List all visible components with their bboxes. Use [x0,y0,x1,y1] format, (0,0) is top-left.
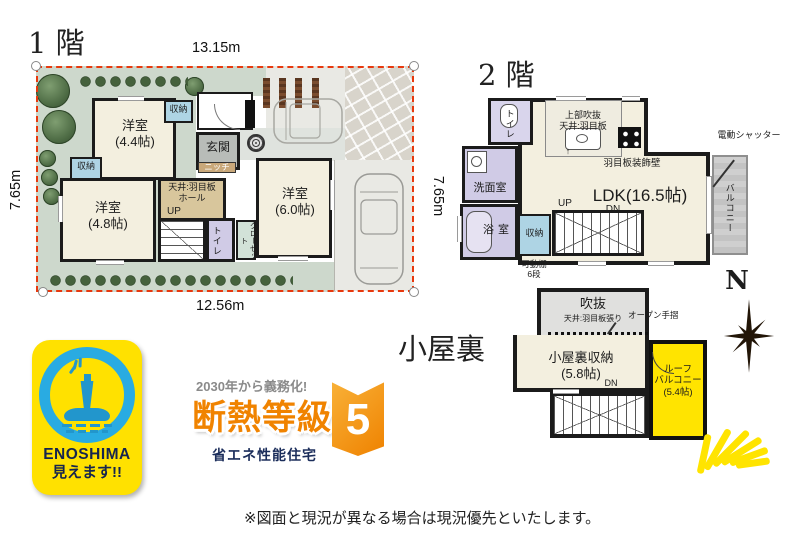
window [96,260,124,265]
tree-icon [39,150,56,167]
label-up-1f: UP [162,206,186,218]
tree-icon [42,110,76,144]
label-deco-wall: 羽目板装飾壁 [592,158,672,169]
boundary-marker [38,287,48,297]
label-shelf: 可動棚 6段 [510,259,558,279]
room-label-storage-2f: 収納 [520,228,549,239]
window [648,261,674,266]
floor1-dim-bottom: 12.56m [196,298,244,314]
insulation-top-text: 2030年から義務化! [196,379,326,395]
stairs-2f [552,210,644,256]
wave-icon [62,424,112,427]
lighthouse-ray-icon [79,357,82,367]
floorplan-canvas: 1 階 13.15m 7.65m 7.65m 12.56m [0,0,800,544]
decorative-circle [247,134,265,152]
floor2-title: 2 階 [478,52,535,94]
window [556,96,586,101]
boundary-marker [31,61,41,71]
shrub-row-top [78,74,188,89]
wall [644,98,648,156]
room-label-genkan: 玄関 [198,140,238,154]
room-label-bed60: 洋室 (6.0帖) [258,186,332,217]
insulation-sub-text: 省エネ性能住宅 [212,447,332,464]
label-dn-2f: DN [600,204,626,216]
label-roof-balcony: ルーフ バルコニー (5.4帖) [651,364,705,398]
wall [644,152,710,156]
sink-bowl-icon [576,134,588,143]
room-label-closet-1f: クローゼット [240,221,258,261]
window [457,216,462,242]
label-up-2f: UP [552,198,578,210]
insulation-main-text: 断熱等級 [192,398,342,439]
label-balcony: バルコニー [724,178,735,238]
insulation-number: 5 [332,394,384,447]
tree-icon [41,169,58,186]
enoshima-text: ENOSHIMA [33,446,141,465]
label-shutter: 電動シャッター [704,130,794,141]
attic-title: 小屋裏 [398,326,485,368]
tree-icon [36,74,70,108]
lighthouse-cap-icon [84,374,91,381]
window [578,261,606,266]
stove-icon [618,127,641,148]
enoshima-subtext: 見えます!! [33,464,141,482]
floor1-dim-top: 13.15m [192,40,240,56]
car-icon [272,94,344,148]
floor1-dim-left: 7.65m [8,160,24,220]
room-label-washroom: 洗面室 [463,182,517,195]
room-label-toilet-2f: トイレ [504,104,515,144]
floor1-title: 1 階 [28,20,85,62]
window [553,389,579,394]
room-label-bed48: 洋室 (4.8帖) [62,200,154,231]
label-open-rail: オープン手摺 [628,310,688,320]
ldk-notch-mask [646,94,714,152]
label-dn-attic: DN [598,378,624,389]
floor1-dim-right: 7.65m [430,166,446,226]
compass-icon [720,296,778,376]
room-label-bed44: 洋室 (4.4帖) [97,118,173,149]
room-label-storage-a: 収納 [164,104,193,115]
wave-icon [66,430,108,433]
compass-n-label: N [722,266,752,297]
label-niche: ニッチ [198,162,236,172]
stairs-attic [550,392,649,438]
room-label-hall: 天井:羽目板 ホール [158,182,226,204]
room-label-storage-b: 収納 [71,161,101,172]
window [278,256,308,261]
shrub-row-bottom [48,273,293,288]
deco-wall-arrow: ↑ [562,146,574,157]
boundary-marker [409,287,419,297]
room-label-bath: 浴室 [478,224,518,237]
entry-door [245,100,255,128]
window [622,96,640,101]
window [118,96,144,101]
footer-note: ※図面と現況が異なる場合は現況優先といたします。 [244,510,614,528]
stone-paving [345,66,414,160]
room-label-toilet-1f: トイレ [211,222,222,260]
island-mound-icon [64,408,110,421]
washer-drum-icon [471,156,482,167]
boundary-marker [409,61,419,71]
label-attic-storage: 小屋裏収納 (5.8帖) [517,350,645,381]
room-label-ldk: LDK(16.5帖) [572,186,708,206]
car-icon [352,172,406,286]
wood-post [263,78,270,108]
label-upper-void: 上部吹抜 天井:羽目板 [548,110,618,132]
stairs-1f [158,218,206,262]
